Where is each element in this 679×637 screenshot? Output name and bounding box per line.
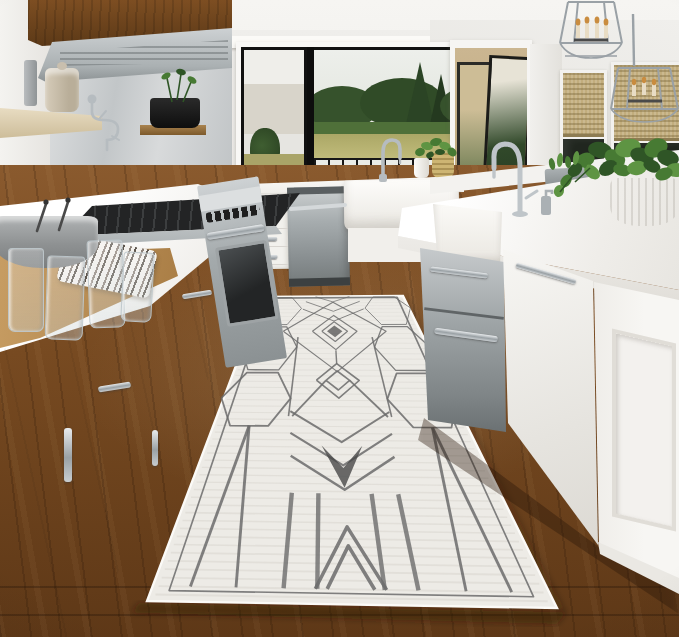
ceramic-canister	[45, 68, 79, 112]
window-pane-left-porch-view	[244, 50, 304, 173]
kitchen-photo	[0, 0, 679, 637]
oven-window	[215, 240, 279, 327]
window-frame	[241, 47, 457, 176]
island-end-panel	[592, 280, 679, 590]
fridge-drawer-handle-top	[430, 266, 488, 278]
plant-bowl	[610, 178, 679, 226]
porch-wall	[244, 84, 304, 134]
porch-beam	[244, 50, 304, 84]
canister-lid-knob	[57, 62, 67, 70]
fridge-drawer-handle-bottom	[434, 328, 498, 343]
drinking-glass-1	[8, 248, 44, 332]
sill-pot-basket	[432, 153, 454, 178]
metal-tin	[24, 60, 37, 106]
drawer-gap	[424, 307, 504, 320]
woven-shade-2	[614, 65, 679, 141]
island-stainless-drawers	[420, 248, 506, 432]
drinking-glass-4	[120, 251, 155, 323]
end-panel-molding	[612, 329, 676, 532]
woven-shade-1	[563, 73, 604, 137]
sill-pot-white	[414, 158, 429, 178]
oven-handle	[206, 224, 264, 240]
drinking-glass-2	[45, 255, 86, 340]
window-mullion	[307, 47, 314, 176]
left-door-handle-1	[64, 428, 72, 482]
dishwasher-kick	[289, 277, 350, 286]
dishwasher	[287, 186, 350, 286]
black-herb-pot	[150, 98, 200, 128]
left-door-handle-2	[152, 430, 158, 466]
